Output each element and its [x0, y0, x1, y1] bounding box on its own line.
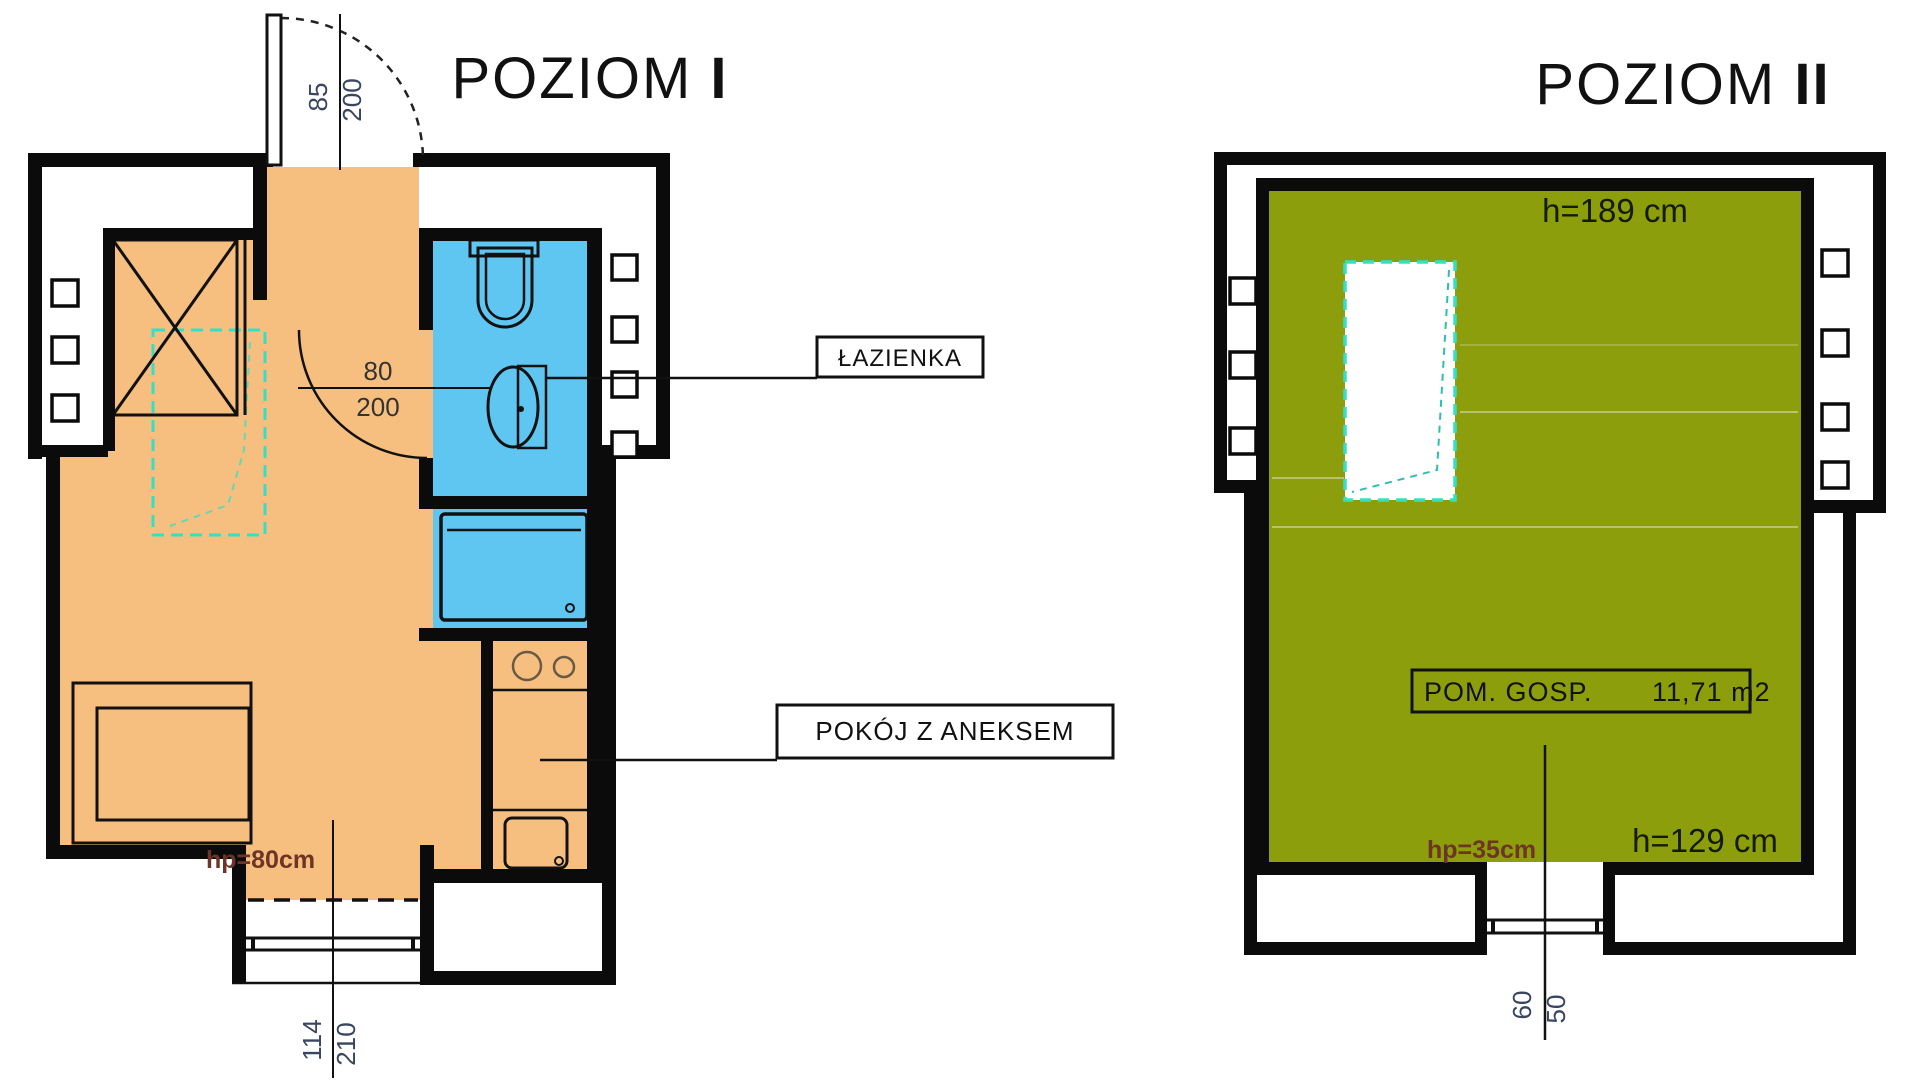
wall-niche-squares-left — [52, 280, 78, 421]
bath-door-height: 200 — [356, 392, 399, 422]
parapet-label-level1: hp=80cm — [206, 846, 315, 874]
level2-title: POZIOM II — [1535, 52, 1830, 117]
window1-height: 210 — [331, 1022, 361, 1065]
wall-niche-squares-right-l2 — [1822, 250, 1848, 488]
wall-niche-squares-left-l2 — [1230, 278, 1256, 454]
room-label-text: POKÓJ Z ANEKSEM — [815, 716, 1074, 746]
wall-niche-squares-right — [612, 255, 637, 457]
level1-title: POZIOM I — [451, 46, 728, 111]
floor-plan-drawing: 85 200 80 200 114 210 hp=80cm ŁAZIENKA — [0, 0, 1920, 1080]
ceiling-hatch-level2 — [1345, 262, 1455, 500]
ceiling-height-top: h=189 cm — [1542, 192, 1688, 229]
window1-width: 114 — [297, 1019, 327, 1060]
bath-door-width: 80 — [364, 356, 393, 386]
floor-plan-page: 85 200 80 200 114 210 hp=80cm ŁAZIENKA — [0, 0, 1920, 1080]
room-label: POKÓJ Z ANEKSEM — [540, 705, 1113, 760]
window2-width: 60 — [1507, 991, 1537, 1020]
bathroom-area — [433, 240, 587, 630]
attic-room-name: POM. GOSP. — [1424, 677, 1593, 707]
ceiling-height-bottom: h=129 cm — [1632, 822, 1778, 859]
window2-height: 50 — [1541, 995, 1571, 1024]
attic-room-label: POM. GOSP. 11,71 m2 — [1412, 670, 1771, 712]
parapet-label-level2: hp=35cm — [1427, 836, 1536, 864]
attic-room-area: 11,71 m2 — [1652, 677, 1771, 707]
bathroom-label-text: ŁAZIENKA — [838, 345, 962, 372]
attic-room — [1256, 178, 1814, 876]
level2-plan: h=189 cm POM. GOSP. 11,71 m2 hp=35cm h=1… — [1214, 52, 1886, 1040]
entry-door-width: 85 — [303, 83, 333, 112]
entry-door-height: 200 — [337, 78, 367, 121]
level1-plan: 85 200 80 200 114 210 hp=80cm ŁAZIENKA — [28, 14, 1113, 1078]
entry-door-dimension: 85 200 — [303, 14, 367, 170]
